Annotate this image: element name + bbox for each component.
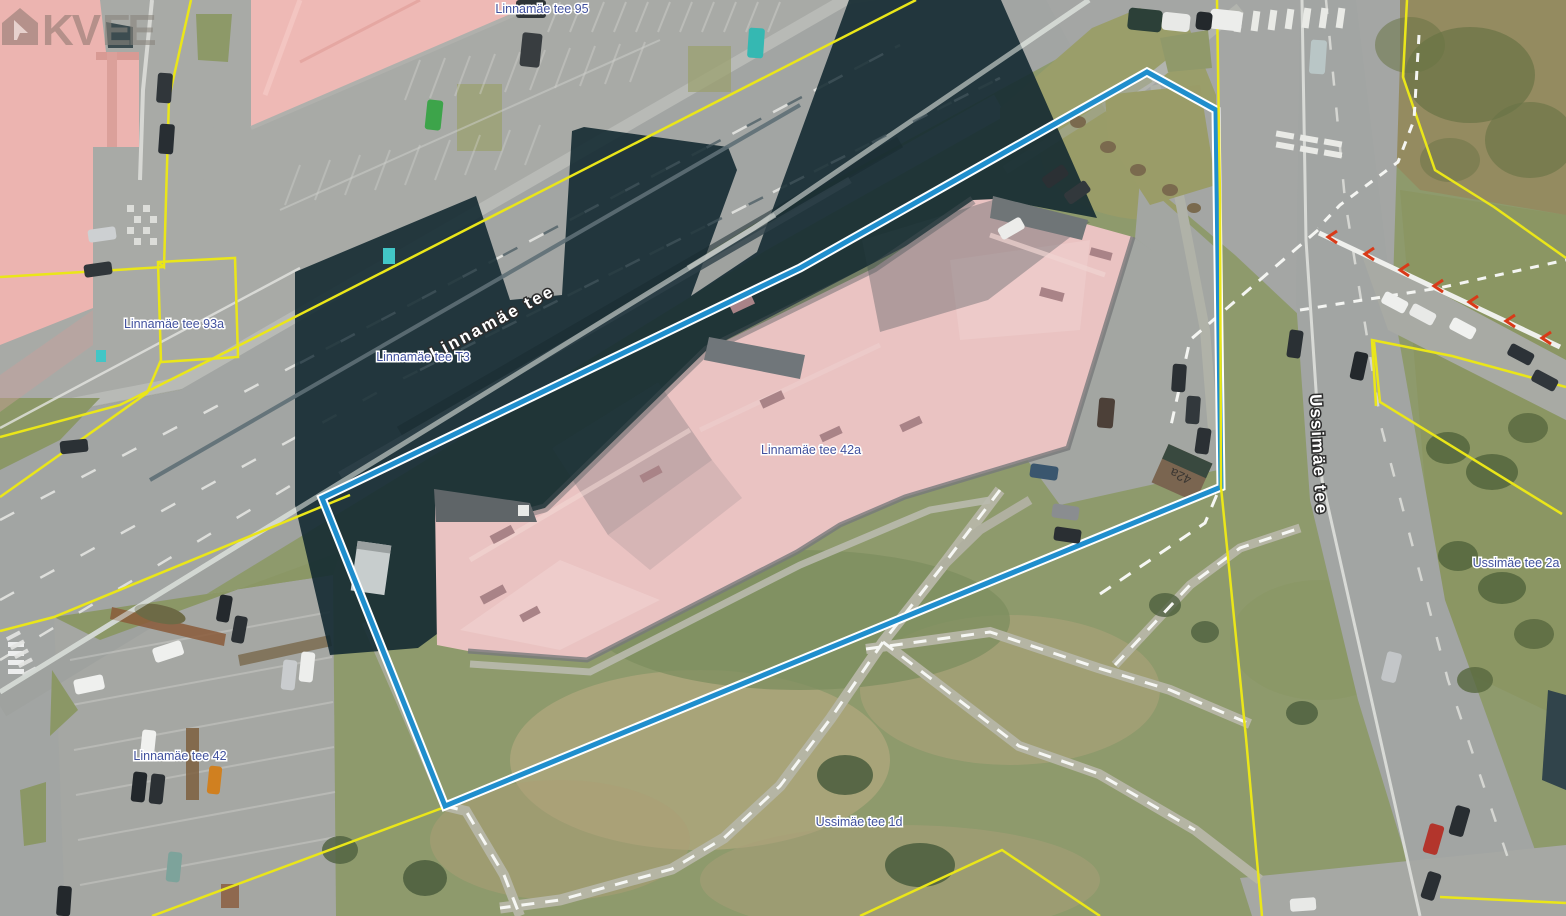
- svg-text:Linnamäe tee 42: Linnamäe tee 42: [133, 749, 226, 763]
- svg-text:Linnamäe tee 95: Linnamäe tee 95: [495, 2, 588, 16]
- svg-text:Ussimäe tee 1d: Ussimäe tee 1d: [816, 815, 903, 829]
- svg-text:Linnamäe tee 42a: Linnamäe tee 42a: [761, 443, 861, 457]
- svg-text:Linnamäe tee 93a: Linnamäe tee 93a: [124, 317, 224, 331]
- svg-text:Ussimäe tee 2a: Ussimäe tee 2a: [1473, 556, 1560, 570]
- svg-text:KV: KV: [42, 6, 102, 55]
- svg-text:EE: EE: [102, 6, 155, 55]
- svg-text:Linnamäe tee T3: Linnamäe tee T3: [376, 350, 470, 364]
